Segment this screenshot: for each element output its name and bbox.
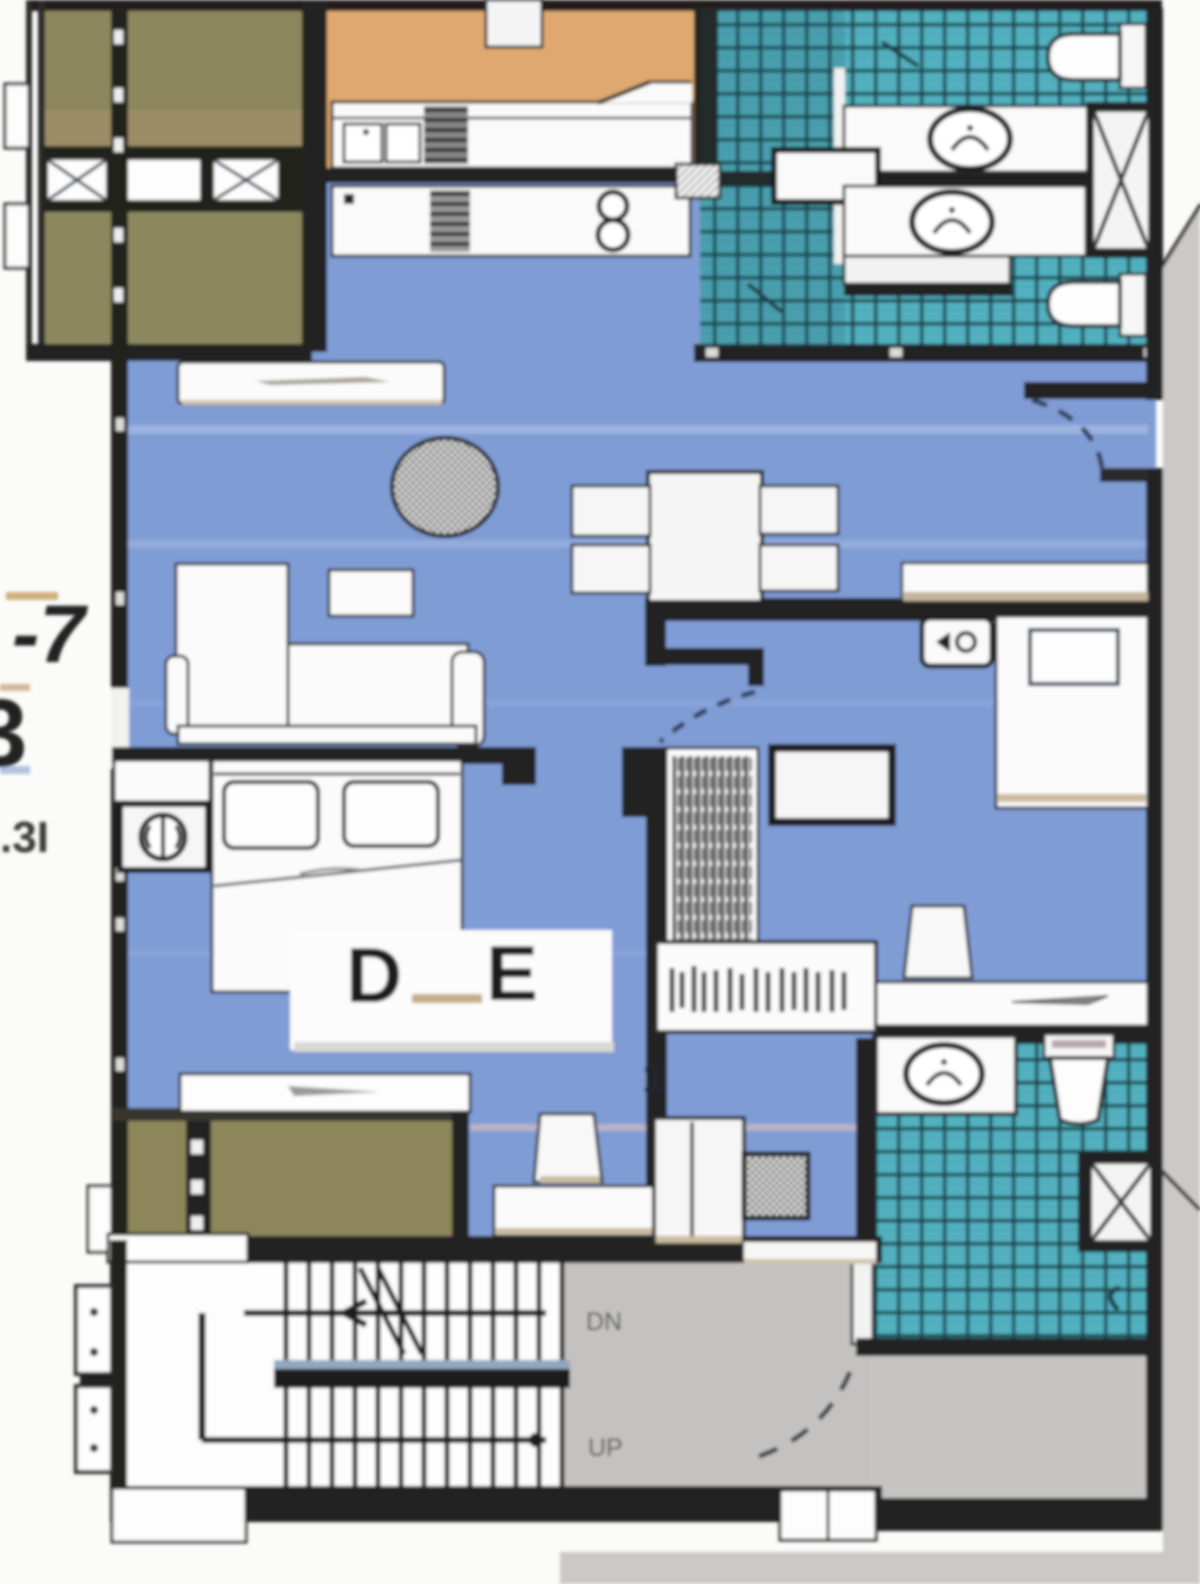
svg-text:3: 3 [0,680,27,787]
svg-text:1: 1 [642,1054,665,1101]
svg-text:E: E [486,929,538,1017]
svg-text:.3I: .3I [0,813,49,862]
svg-text:DN: DN [586,1308,622,1336]
svg-text:-7: -7 [12,589,88,680]
svg-text:D: D [346,931,402,1019]
svg-text:UP: UP [588,1434,623,1462]
